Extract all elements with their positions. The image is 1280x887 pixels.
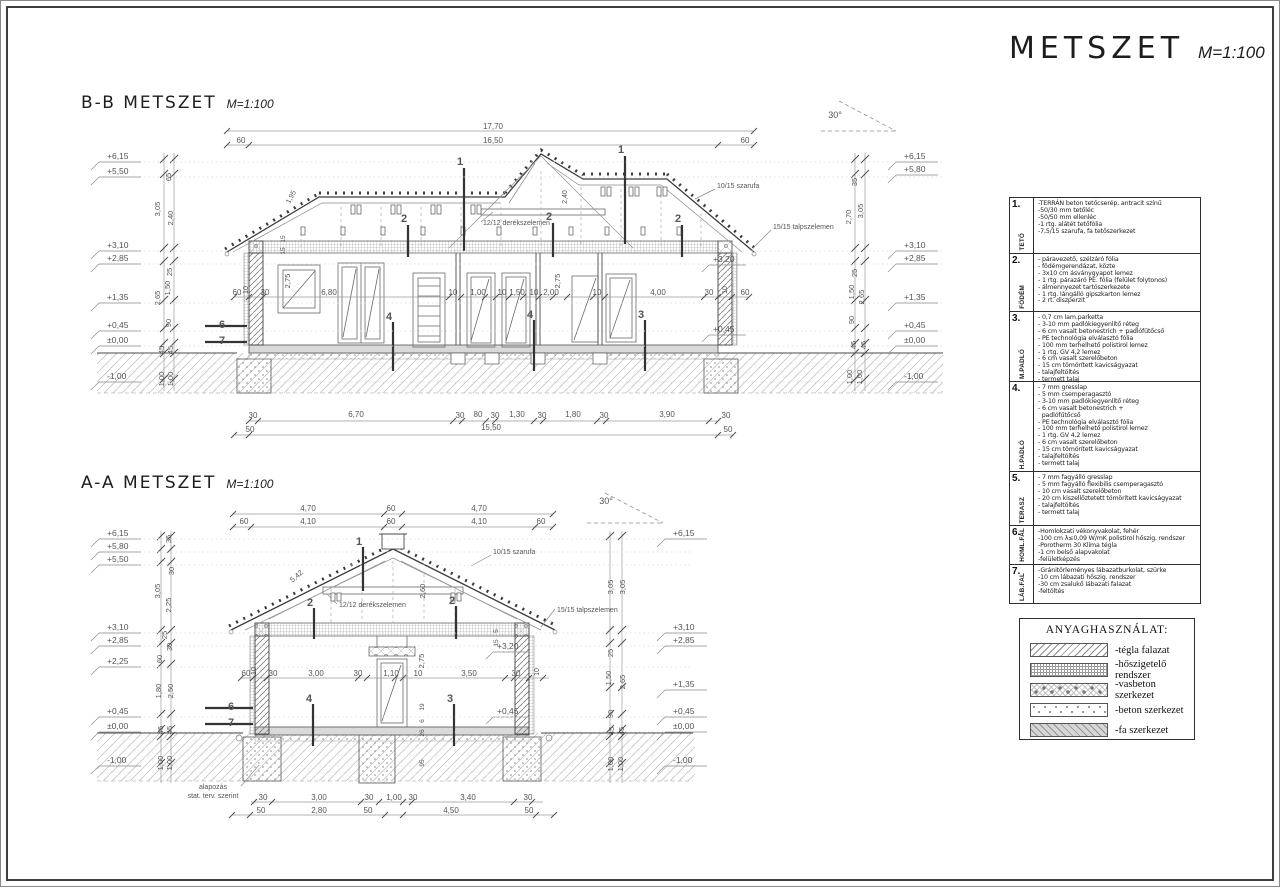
dim-label: 60 [237,136,246,145]
callout-number: 3 [447,693,453,705]
dim-label: 2,65 [153,291,162,306]
dim-label: 2,75 [417,654,426,669]
dim-label: 1,00 [157,372,166,387]
legend-label: -vasbeton szerkezet [1115,679,1186,701]
dim-label: 30 [705,288,714,297]
dim-label: 6,80 [321,288,337,297]
level-label: +0,45 [107,320,129,330]
dim-label: 25 [606,649,615,657]
note-lines: - 0,7 cm lam.parketta - 3-10 mm padlókie… [1034,312,1165,381]
dim-label: 2,75 [283,274,292,289]
dim-label: 1,00 [855,370,864,385]
dim-label: 1,00 [470,288,486,297]
level-label: +5,50 [107,166,129,176]
title-text: METSZET [1009,31,1184,66]
level-label: +0,45 [673,706,695,716]
callout-number: 1 [356,536,362,548]
dim-label: 10 [251,667,258,675]
dim-label: 25 [165,268,174,276]
note-category: H.PADLÓ [1019,440,1026,469]
dim-label: 1,50 [847,285,856,300]
section-title-bb-text: B-B METSZET [81,93,217,113]
legend-item: -hőszigetelő rendszer [1030,662,1186,678]
note-number-cell: 4.H.PADLÓ [1010,382,1034,471]
dim-label: 3,90 [659,410,675,419]
level-label: +2,85 [107,253,129,263]
callout-number: 1 [618,144,624,156]
dim-label: 3,05 [618,580,627,595]
level-label: +6,15 [673,528,695,538]
callout-number: 1 [457,156,463,168]
dim-label: 15/15 talpszelemen [773,224,834,231]
dim-label: 30 [600,411,609,420]
legend-item: -tégla falazat [1030,642,1186,658]
level-label: +1,35 [107,292,129,302]
section-title-bb-scale: M=1:100 [227,97,274,111]
dim-label: 50 [525,806,534,815]
aa-foundation-mid [359,735,395,783]
dim-label: 30 [491,411,500,420]
legend-label: -beton szerkezet [1115,705,1184,716]
callout-number: 2 [307,597,313,609]
level-label: +6,15 [904,151,926,161]
dim-label: 1,30 [509,410,525,419]
section-title-aa-text: A-A METSZET [81,473,216,493]
dim-label: +3,20 [713,254,735,264]
dim-label: 1,50 [509,288,525,297]
dim-label: 1,00 [166,372,175,387]
dim-label: 60 [387,517,396,526]
dim-label: 5,42 [288,568,305,584]
aa-gutter-left [229,630,233,634]
dim-label: 80 [474,410,483,419]
dim-label: 19 [419,703,426,711]
legend-label: -hőszigetelő rendszer [1115,659,1186,681]
note-lines: - 7 mm fagyálló gresslap - 5 mm fagyálló… [1034,472,1182,525]
dim-label: 6 [419,719,426,723]
aa-ringbeam-left [255,623,269,636]
callout-number: 3 [638,309,644,321]
dim-label: 35 [164,535,173,543]
bb-ceiling-band [249,241,718,253]
dim-label: 45 [859,341,868,349]
dim-label: 30 [249,411,258,420]
dim-label: stat. terv. szerint [188,793,239,800]
dim-label: 30 [456,411,465,420]
callout-number: 2 [546,211,552,223]
dim-label: 45 [617,727,626,735]
level-label: ±0,00 [904,335,925,345]
dim-label: 45 [157,346,166,354]
dim-label: 2,40 [562,190,569,204]
dim-label: 12/12 derékszelemen [483,220,550,227]
level-label: +3,10 [904,240,926,250]
bb-gutter-left [225,252,229,256]
level-label: +2,85 [107,635,129,645]
dim-label: 1,10 [383,669,399,678]
level-label: -1,00 [673,755,693,765]
dim-label: 3,40 [460,793,476,802]
dim-label: 1,95 [285,190,298,205]
note-row-f-d-m: 2.FÖDÉM- páravezető, szélzáró fólia - fö… [1010,254,1200,312]
dim-label: 1,00 [386,793,402,802]
dim-label: 1,00 [606,757,615,772]
callout-number: 2 [449,595,455,607]
note-row-m-padl-: 3.M.PADLÓ- 0,7 cm lam.parketta - 3-10 mm… [1010,312,1200,382]
dim-label: 3,05 [153,202,162,217]
dim-label: 10 [414,669,423,678]
dim-label: 30 [167,567,176,575]
level-label: +3,10 [107,622,129,632]
level-label: ±0,00 [107,721,128,731]
aa-foundation-right [503,737,541,781]
aa-ceiling-band [255,623,529,636]
note-row-tet-: 1.TETŐ-TERRÁN beton tetőcserép, antracit… [1010,198,1200,254]
level-label: +1,35 [904,292,926,302]
note-lines: - páravezető, szélzáró fólia - födémgere… [1034,254,1168,311]
dim-label: 30 [354,669,363,678]
bb-floor-slab [249,345,718,353]
dim-label: 10 [722,286,729,294]
dim-label: 3,05 [856,204,865,219]
dim-label: 50 [257,806,266,815]
dim-label: 90 [606,710,615,718]
level-label: +3,10 [107,240,129,250]
note-category: M.PADLÓ [1019,349,1026,379]
aa-section-drawing [97,493,695,786]
legend-label: -fa szerkezet [1115,725,1168,736]
note-row-h-padl-: 4.H.PADLÓ- 7 mm gresslap - 5 mm csempera… [1010,382,1200,472]
callout-number: 7 [219,335,225,347]
brick-hatch-swatch [1030,643,1108,657]
level-label: +0,45 [904,320,926,330]
dim-label: 95 [419,759,426,767]
callout-number: 6 [219,319,225,331]
dim-label: 15/15 talpszelemen [557,607,618,614]
dim-label: 10 [530,288,539,297]
dim-label: 10 [534,668,541,676]
aa-subbase [255,735,529,741]
dim-label: +3,20 [497,641,519,651]
note-number: 4. [1010,382,1033,394]
dim-label: 4,70 [300,504,316,513]
bb-gutter-right [752,252,756,256]
dim-label: 2,50 [166,684,175,699]
dim-label: 30 [722,411,731,420]
callout-number: 2 [675,213,681,225]
dim-label: 2,75 [553,274,562,289]
note-lines: -Homlokzati vékonyvakolat, fehér -100 cm… [1034,526,1186,564]
dim-label: 2,70 [844,210,853,225]
legend: ANYAGHASZNÁLAT: -tégla falazat-hőszigete… [1019,618,1195,740]
note-lines: -TERRÁN beton tetőcserép, antracit színű… [1034,198,1163,253]
callout-number: 7 [228,717,234,729]
dim-label: 3,00 [311,793,327,802]
dim-label: 60 [387,504,396,513]
legend-items: -tégla falazat-hőszigetelő rendszer-vasb… [1020,642,1194,738]
bb-openings [278,263,636,347]
dim-label: 1,80 [565,410,581,419]
dim-label: 45 [607,727,616,735]
dim-label: 10 [593,288,602,297]
dim-label: 1,00 [845,370,854,385]
level-label: +2,25 [107,656,129,666]
level-label: -1,00 [107,755,127,765]
dim-label: 30 [512,669,521,678]
dim-label: 15,50 [481,423,502,432]
dim-label: 45 [166,346,175,354]
dim-label: 35 [850,178,859,186]
aa-floor-slab [255,727,529,735]
dim-label: 45 [156,726,165,734]
aa-door-lintel [369,647,415,656]
legend-item: -fa szerkezet [1030,722,1186,738]
note-lines: -Gránitörleményes lábazatburkolat, szürk… [1034,565,1167,603]
dim-label: 3,05 [606,580,615,595]
drawing-sheet: METSZETM=1:100 B-B METSZETM=1:100 A-A ME… [0,0,1280,887]
note-row-homl-fal: 6.HOML.FAL-Homlokzati vékonyvakolat, feh… [1010,526,1200,565]
dim-label: 3,50 [461,669,477,678]
level-label: +5,80 [107,541,129,551]
note-number-cell: 1.TETŐ [1010,198,1034,253]
aa-foundation-left [243,737,281,781]
aa-ringbeam-right [515,623,529,636]
aa-wall-insulation-left [250,636,255,734]
note-row-l-b-fal: 7.LÁB.FAL-Gránitörleményes lábazatburkol… [1010,565,1200,603]
note-row-terasz: 5.TERASZ- 7 mm fagyálló gresslap - 5 mm … [1010,472,1200,526]
bb-collar-purlin [481,209,605,215]
dim-label: +0,45 [497,706,519,716]
dim-label: 26 [419,729,426,737]
dim-label: 5 [493,629,500,633]
section-title-aa: A-A METSZETM=1:100 [81,473,273,493]
dim-label: 3,05 [153,584,162,599]
dim-label: 45 [849,341,858,349]
note-category: TERASZ [1019,497,1026,523]
dim-label: 45 [165,726,174,734]
dim-label: 10/15 szarufa [493,549,536,556]
dim-label: 1,50 [604,671,613,686]
dim-label: 4,50 [443,806,459,815]
concrete-hatch-swatch [1030,703,1108,717]
dim-label: 30 [165,643,174,651]
level-label: +5,50 [107,554,129,564]
dim-label: 1,80 [154,684,163,699]
aa-wall-left [255,636,269,734]
level-label: ±0,00 [673,721,694,731]
wood-hatch-swatch [1030,723,1108,737]
dim-label: 10 [449,288,458,297]
dim-label: 2,25 [164,598,173,613]
rc-hatch-swatch [1030,683,1108,697]
note-number-cell: 7.LÁB.FAL [1010,565,1034,603]
dim-label: 60 [233,288,242,297]
note-number: 1. [1010,198,1033,210]
dim-label: +0,45 [713,324,735,334]
dim-label: alapozás [199,784,228,791]
dim-label: 15 [280,235,287,243]
dim-label: 10/15 szarufa [717,183,760,190]
dim-label: 10 [498,288,507,297]
dim-label: 2,65 [618,675,627,690]
dim-label: 2,60 [418,584,427,599]
dim-label: 1,00 [165,756,174,771]
dim-label: 4,00 [650,288,666,297]
dim-label: 1,00 [616,757,625,772]
callout-number: 6 [228,701,234,713]
level-label: +2,85 [673,635,695,645]
dim-label: 1,00 [156,756,165,771]
level-label: -1,00 [107,371,127,381]
level-label: +3,10 [673,622,695,632]
bb-foundation-right [704,359,738,393]
bb-foundation-left [237,359,271,393]
dim-label: 60 [242,669,251,678]
note-number: 5. [1010,472,1033,484]
level-label: -1,00 [904,371,924,381]
callout-number: 4 [306,693,313,705]
dim-label: 12/12 derékszelemen [339,602,406,609]
bb-subbase [249,353,718,359]
legend-label: -tégla falazat [1115,645,1170,656]
dim-label: 60 [741,288,750,297]
note-category: FÖDÉM [1019,285,1026,309]
dim-label: 50 [364,806,373,815]
dim-label: 3,00 [308,669,324,678]
level-label: +5,80 [904,164,926,174]
dim-label: 4,10 [300,517,316,526]
dim-label: 60 [240,517,249,526]
dim-label: 1,50 [163,281,172,296]
aa-gutter-right [553,630,557,634]
dim-label: 2,00 [543,288,559,297]
dim-label: 2,65 [857,290,866,305]
level-label: +0,45 [107,706,129,716]
bb-ringbeam-left [249,241,263,253]
level-label: ±0,00 [107,335,128,345]
dim-label: 30 [524,793,533,802]
note-number: 3. [1010,312,1033,324]
dim-label: 15 [280,247,287,255]
dim-label: 50 [246,425,255,434]
aa-chimney [382,534,404,549]
dim-label: 30 [261,288,270,297]
note-number-cell: 5.TERASZ [1010,472,1034,525]
dim-label: 90 [164,319,173,327]
title-scale: M=1:100 [1198,43,1265,62]
note-category: HOML.FAL [1019,528,1026,562]
dim-label: 4,70 [471,504,487,513]
dim-label: 60 [537,517,546,526]
level-label: +6,15 [107,528,129,538]
dim-label: 30 [538,411,547,420]
dim-label: 65 [164,173,173,181]
dim-label: 25 [160,631,169,639]
section-title-bb: B-B METSZETM=1:100 [81,93,274,113]
page-title: METSZETM=1:100 [1009,31,1265,66]
note-number-cell: 6.HOML.FAL [1010,526,1034,564]
dim-label: 60 [155,655,164,663]
legend-item: -vasbeton szerkezet [1030,682,1186,698]
insulation-hatch-swatch [1030,663,1108,677]
dim-label: 16,50 [483,136,504,145]
dim-label: 2,40 [166,211,175,226]
dim-label: 4,10 [471,517,487,526]
dim-label: 90 [847,316,856,324]
dim-label: 30° [828,110,842,120]
notes-panel: 1.TETŐ-TERRÁN beton tetőcserép, antracit… [1009,197,1201,604]
legend-item: -beton szerkezet [1030,702,1186,718]
aa-wall-insulation-right [529,636,534,734]
dim-label: 30 [365,793,374,802]
dim-label: 30 [269,669,278,678]
dim-label: 30 [409,793,418,802]
dim-label: 60 [741,136,750,145]
legend-title: ANYAGHASZNÁLAT: [1020,624,1194,636]
section-title-aa-scale: M=1:100 [226,477,273,491]
dim-label: 2,80 [311,806,327,815]
dim-label: 25 [850,269,859,277]
bb-roof-inner [233,163,742,252]
dim-label: 17,70 [483,122,504,131]
level-label: +2,85 [904,253,926,263]
callout-number: 2 [401,213,407,225]
callout-number: 4 [386,311,393,323]
note-category: LÁB.FAL [1019,573,1026,601]
level-label: +6,15 [107,151,129,161]
dim-label: 10 [243,286,250,294]
callout-number: 4 [527,309,534,321]
note-number-cell: 3.M.PADLÓ [1010,312,1034,381]
note-category: TETŐ [1019,233,1026,251]
dim-label: 30° [599,496,613,506]
note-lines: - 7 mm gresslap - 5 mm csemperagasztó - … [1034,382,1149,471]
dim-label: 50 [724,425,733,434]
dim-label: 30 [259,793,268,802]
note-number-cell: 2.FÖDÉM [1010,254,1034,311]
note-number: 2. [1010,254,1033,266]
level-label: +1,35 [673,679,695,689]
dim-label: 6,70 [348,410,364,419]
